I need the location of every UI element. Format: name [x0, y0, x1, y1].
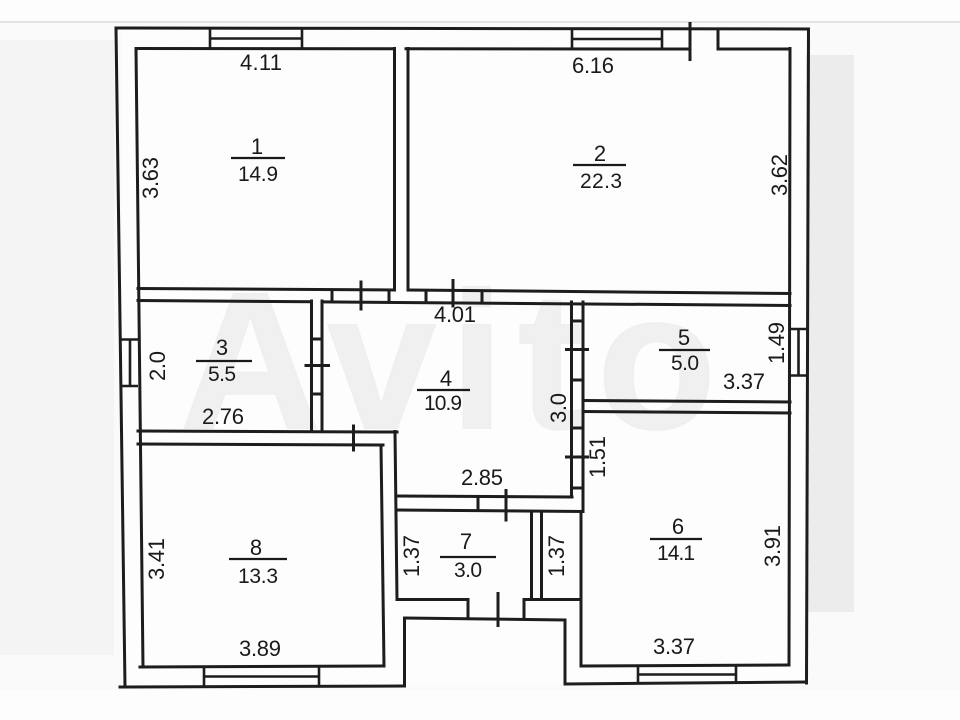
svg-text:1: 1	[251, 134, 263, 159]
svg-text:22.3: 22.3	[580, 170, 622, 193]
svg-text:8: 8	[250, 535, 262, 560]
svg-text:3.63: 3.63	[138, 157, 163, 199]
svg-text:2.76: 2.76	[202, 404, 244, 429]
svg-text:3.91: 3.91	[760, 525, 785, 567]
svg-text:2: 2	[594, 141, 606, 166]
svg-text:4: 4	[440, 366, 452, 391]
svg-text:2.0: 2.0	[145, 351, 170, 381]
svg-text:13.3: 13.3	[238, 565, 278, 588]
svg-text:6.16: 6.16	[572, 53, 614, 78]
svg-text:14.9: 14.9	[238, 163, 278, 186]
svg-text:Avito: Avito	[180, 252, 730, 470]
svg-text:1.51: 1.51	[585, 436, 610, 478]
svg-text:5: 5	[678, 325, 690, 350]
svg-text:4.11: 4.11	[240, 50, 282, 75]
svg-text:6: 6	[672, 514, 684, 539]
svg-text:3.41: 3.41	[144, 538, 169, 580]
svg-text:3.37: 3.37	[653, 634, 695, 659]
svg-text:3.0: 3.0	[546, 393, 571, 423]
svg-text:2.85: 2.85	[461, 465, 503, 490]
svg-text:7: 7	[460, 529, 472, 554]
svg-text:3.0: 3.0	[454, 559, 482, 582]
svg-text:1.49: 1.49	[764, 322, 789, 364]
svg-text:1.37: 1.37	[544, 535, 569, 577]
svg-text:3.62: 3.62	[767, 154, 792, 196]
svg-text:4.01: 4.01	[434, 302, 476, 327]
svg-text:3: 3	[216, 335, 228, 360]
svg-text:1.37: 1.37	[399, 535, 424, 577]
svg-text:14.1: 14.1	[657, 542, 695, 565]
svg-text:5.5: 5.5	[208, 363, 236, 386]
svg-text:10.9: 10.9	[424, 392, 462, 415]
svg-text:3.89: 3.89	[239, 636, 281, 661]
svg-text:3.37: 3.37	[723, 369, 765, 394]
svg-text:5.0: 5.0	[671, 352, 699, 375]
